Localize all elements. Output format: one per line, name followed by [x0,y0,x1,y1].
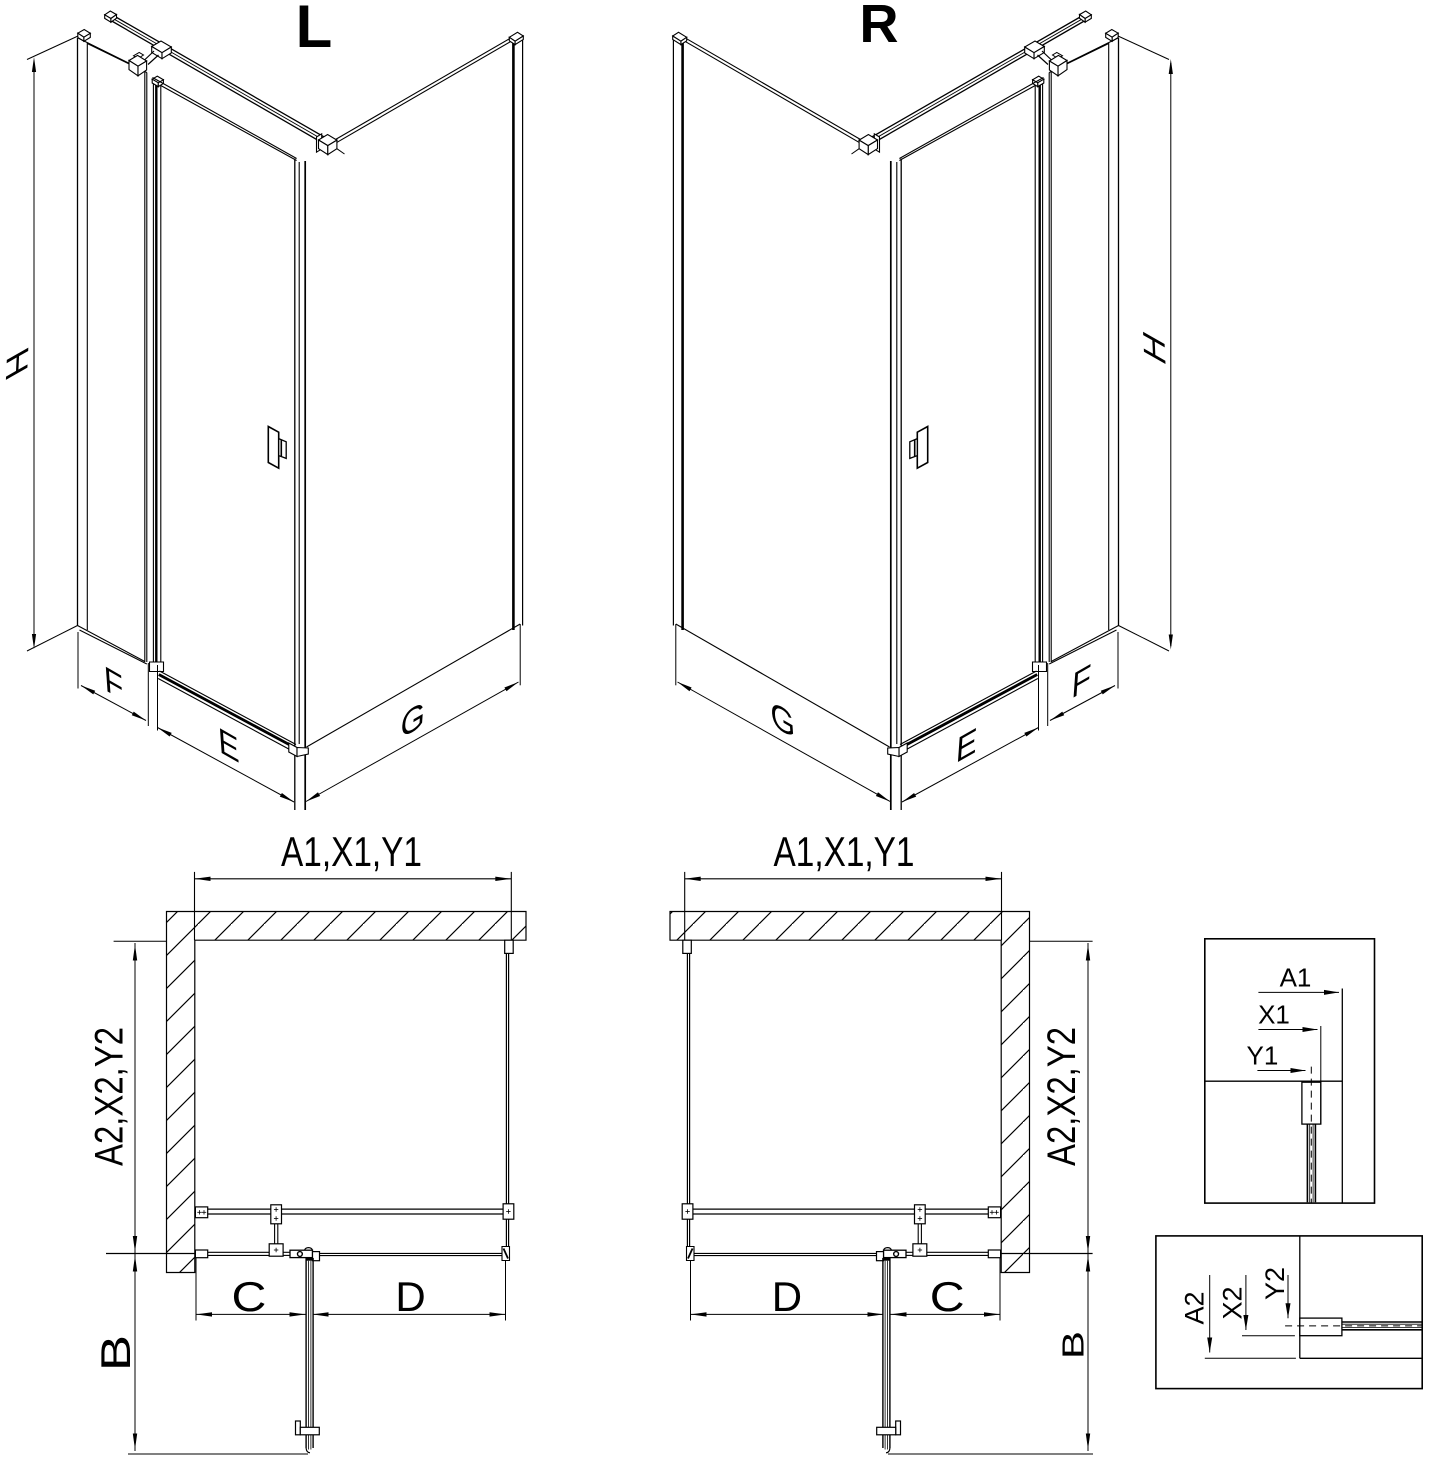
svg-text:B: B [1056,1331,1091,1359]
svg-text:D: D [772,1273,802,1320]
svg-text:C: C [930,1273,965,1320]
svg-text:A2: A2 [1180,1291,1210,1324]
svg-text:Y2: Y2 [1260,1267,1290,1300]
svg-text:X2: X2 [1218,1286,1248,1319]
svg-text:L: L [296,0,333,60]
svg-text:Y1: Y1 [1246,1041,1278,1071]
svg-text:A1,X1,Y1: A1,X1,Y1 [774,828,915,875]
svg-text:A1: A1 [1280,963,1312,993]
svg-text:C: C [232,1273,267,1320]
svg-text:R: R [860,0,899,54]
svg-text:D: D [395,1273,425,1320]
svg-text:A1,X1,Y1: A1,X1,Y1 [281,828,422,875]
svg-text:A2,X2,Y2: A2,X2,Y2 [1040,1027,1084,1166]
svg-text:X1: X1 [1258,1000,1290,1030]
svg-text:B: B [93,1335,140,1371]
svg-text:A2,X2,Y2: A2,X2,Y2 [88,1027,132,1166]
